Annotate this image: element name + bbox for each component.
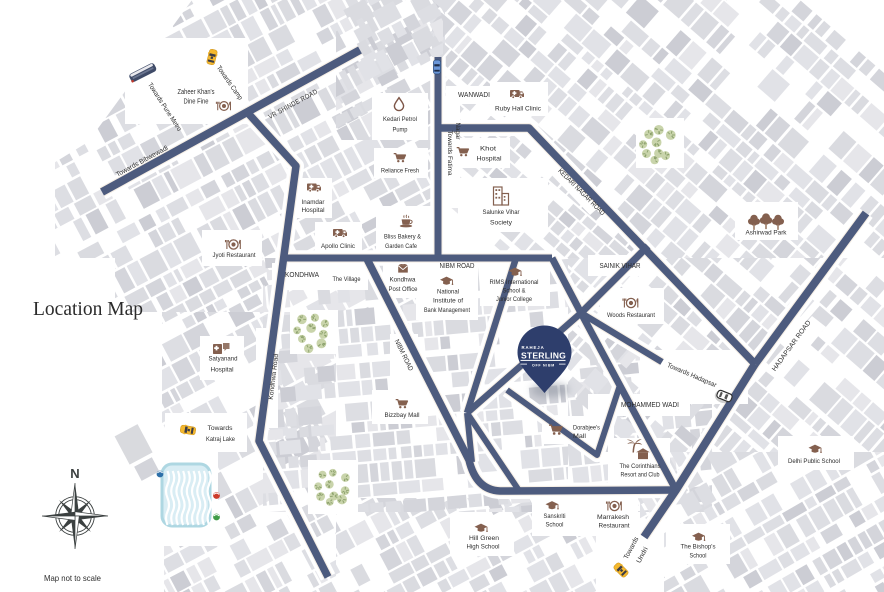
svg-text:Jyoti Restaurant: Jyoti Restaurant [213, 252, 256, 259]
svg-text:Mall: Mall [573, 433, 587, 440]
svg-text:STERLING: STERLING [521, 350, 566, 360]
svg-text:Ruby Hall Clinic: Ruby Hall Clinic [495, 106, 542, 113]
svg-text:NIBM ROAD: NIBM ROAD [440, 263, 475, 270]
svg-text:Post Office: Post Office [389, 286, 418, 293]
svg-text:Towards: Towards [208, 425, 234, 432]
svg-text:RAHEJA: RAHEJA [522, 345, 545, 350]
svg-text:Garden Cafe: Garden Cafe [385, 243, 417, 250]
svg-text:N: N [70, 466, 79, 481]
svg-text:Salunke Vihar: Salunke Vihar [483, 209, 521, 216]
svg-text:Bank Management: Bank Management [424, 307, 470, 314]
svg-text:Woods Restaurant: Woods Restaurant [607, 312, 655, 319]
svg-text:Society: Society [490, 220, 513, 227]
svg-text:RIMS International: RIMS International [490, 279, 539, 286]
svg-text:SAINIK VIHAR: SAINIK VIHAR [600, 263, 641, 270]
svg-text:Ashirwad Park: Ashirwad Park [746, 230, 788, 237]
svg-text:Map not to scale: Map not to scale [44, 574, 101, 583]
svg-text:The Bishop's: The Bishop's [681, 544, 717, 551]
svg-text:Pump: Pump [393, 127, 408, 134]
svg-text:MOHAMMED WADI: MOHAMMED WADI [621, 402, 679, 409]
svg-text:Hospital: Hospital [302, 207, 325, 214]
svg-text:School: School [690, 553, 707, 560]
svg-text:WANWADI: WANWADI [458, 92, 490, 99]
svg-text:Kondhwa: Kondhwa [390, 277, 416, 284]
svg-text:National: National [437, 289, 459, 296]
svg-text:Institute of: Institute of [433, 298, 463, 305]
svg-text:Sanskriti: Sanskriti [544, 513, 566, 520]
svg-text:Resort and Club: Resort and Club [621, 472, 660, 479]
svg-text:Hospital: Hospital [477, 156, 502, 163]
svg-text:Marrakesh: Marrakesh [597, 514, 629, 521]
svg-text:Apollo Clinic: Apollo Clinic [321, 243, 356, 250]
svg-text:Restaurant: Restaurant [599, 523, 630, 530]
svg-text:School: School [546, 522, 564, 529]
svg-text:Dine Fine: Dine Fine [184, 99, 209, 106]
svg-text:Location Map: Location Map [33, 298, 143, 320]
svg-text:Dorabjee's: Dorabjee's [573, 425, 601, 432]
svg-text:Nagar: Nagar [454, 123, 461, 141]
svg-text:Kedari Petrol: Kedari Petrol [383, 116, 417, 123]
svg-text:Inamdar: Inamdar [302, 199, 326, 206]
svg-text:The Corinthians: The Corinthians [620, 463, 662, 470]
svg-text:Zaheer Khan's: Zaheer Khan's [178, 89, 215, 96]
svg-text:Bliss Bakery &: Bliss Bakery & [384, 234, 421, 241]
svg-text:Delhi Public School: Delhi Public School [788, 458, 840, 465]
svg-text:OFF NIBM: OFF NIBM [532, 363, 555, 367]
svg-text:Satyanand: Satyanand [209, 356, 238, 363]
svg-text:Hospital: Hospital [211, 367, 234, 374]
svg-text:KONDHWA: KONDHWA [285, 272, 319, 279]
svg-text:The Village: The Village [333, 276, 361, 283]
svg-text:Junior College: Junior College [496, 296, 532, 303]
svg-text:School &: School & [503, 288, 526, 295]
svg-text:High School: High School [467, 544, 500, 551]
svg-text:Towards Fatima: Towards Fatima [446, 131, 453, 176]
svg-text:Reliance Fresh: Reliance Fresh [381, 168, 419, 175]
svg-text:Hill Green: Hill Green [469, 535, 499, 542]
svg-text:Katraj Lake: Katraj Lake [206, 436, 235, 443]
svg-text:Khot: Khot [480, 146, 496, 153]
svg-text:Bizzbay Mall: Bizzbay Mall [385, 412, 420, 419]
